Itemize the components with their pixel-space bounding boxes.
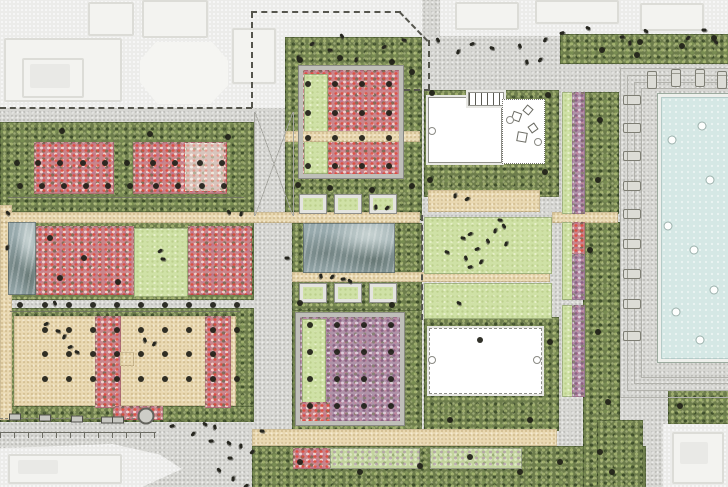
- person-figure: [231, 476, 234, 481]
- boundary-dash: [421, 215, 423, 320]
- site-plan: [0, 0, 728, 487]
- raised-planter: [370, 195, 396, 213]
- context-building-outline: [680, 442, 708, 464]
- flower-strip-east: [572, 92, 585, 214]
- raised-planter: [335, 284, 361, 302]
- pavilion-building: [428, 97, 502, 163]
- person-figure: [190, 431, 195, 437]
- sand-path-main-horizontal: [0, 212, 420, 223]
- person-figure: [243, 483, 249, 487]
- reflecting-pool: [303, 223, 395, 273]
- flower-strip-on-plaza: [205, 316, 231, 408]
- pavilion-building-south: [429, 328, 542, 394]
- person-figure: [213, 424, 217, 430]
- person-figure: [216, 467, 222, 473]
- promenade-edge-dashed: [0, 418, 150, 419]
- person-figure: [226, 440, 232, 445]
- boundary-dash: [404, 89, 430, 91]
- raised-planter: [300, 195, 326, 213]
- planting-strip-mixed: [330, 448, 420, 469]
- context-building-outline: [535, 0, 619, 24]
- person-figure: [227, 456, 232, 459]
- path-truss-marking: [254, 112, 294, 216]
- sand-terrace-pavilion: [428, 190, 540, 212]
- sand-path-south-wide: [252, 429, 557, 446]
- context-building-outline: [88, 2, 134, 36]
- flower-strip-on-plaza: [95, 316, 121, 408]
- context-building-southeast: [663, 424, 728, 487]
- boundary-dash: [251, 11, 401, 13]
- garden-border-frame: [296, 313, 404, 425]
- context-building-outline: [18, 460, 58, 474]
- terrace-table: [516, 131, 528, 143]
- path-edge-line: [8, 197, 244, 198]
- person-figure: [537, 57, 542, 63]
- raised-planter: [335, 195, 361, 213]
- meadow-corner-southeast: [597, 420, 643, 487]
- person-figure: [525, 59, 529, 65]
- person-figure: [239, 443, 242, 448]
- flower-strip-east: [572, 222, 585, 256]
- pavilion-door-knob: [428, 127, 436, 135]
- pavilion-entry-canopy: [468, 92, 504, 106]
- person-figure: [284, 256, 289, 259]
- hedge-strip-north: [560, 34, 728, 64]
- terrace-knob: [506, 116, 514, 124]
- person-figure: [518, 43, 523, 49]
- boundary-dash: [251, 12, 253, 108]
- swimming-pool: [658, 94, 728, 362]
- flower-meadow-large: [36, 226, 134, 295]
- promenade-tick-line: [0, 432, 156, 438]
- person-figure: [469, 42, 475, 47]
- terrace-knob: [534, 138, 542, 146]
- context-building-southwest: [0, 444, 182, 487]
- raised-planter: [370, 284, 396, 302]
- person-figure: [208, 439, 213, 443]
- sand-notch: [120, 352, 134, 366]
- event-lawn-large: [424, 217, 552, 274]
- pavilion-door-knob: [533, 356, 541, 364]
- event-lawn-small: [424, 283, 552, 319]
- flower-bed: [188, 226, 252, 295]
- context-building-outline: [140, 42, 228, 104]
- context-building-outline: [232, 28, 276, 84]
- person-figure: [435, 37, 440, 43]
- meadow-strip-far-east-upper: [583, 92, 619, 214]
- person-figure: [456, 49, 460, 55]
- garden-border-frame: [299, 66, 403, 178]
- flower-bed: [34, 142, 114, 194]
- context-building-outline: [455, 2, 519, 30]
- context-building-outline: [30, 64, 70, 88]
- flower-bed-pale: [185, 143, 224, 191]
- pavilion-door-knob: [428, 356, 436, 364]
- raised-planter: [300, 284, 326, 302]
- lawn-panel: [134, 228, 188, 297]
- context-building-outline: [142, 0, 208, 38]
- person-figure: [543, 37, 548, 43]
- context-building-outline: [640, 3, 704, 31]
- planting-strip-red: [293, 448, 331, 469]
- person-figure: [52, 300, 57, 306]
- boundary-dash: [0, 107, 252, 109]
- path-edge-line: [10, 311, 240, 312]
- person-figure: [489, 46, 495, 51]
- water-channel: [8, 222, 36, 295]
- planting-strip-mixed: [430, 448, 522, 469]
- flower-strip-east: [572, 305, 585, 397]
- boundary-dash: [428, 40, 430, 90]
- person-figure: [169, 424, 175, 428]
- context-buildings-northeast: [440, 0, 728, 36]
- flower-strip-east: [572, 254, 585, 300]
- person-figure: [202, 421, 208, 426]
